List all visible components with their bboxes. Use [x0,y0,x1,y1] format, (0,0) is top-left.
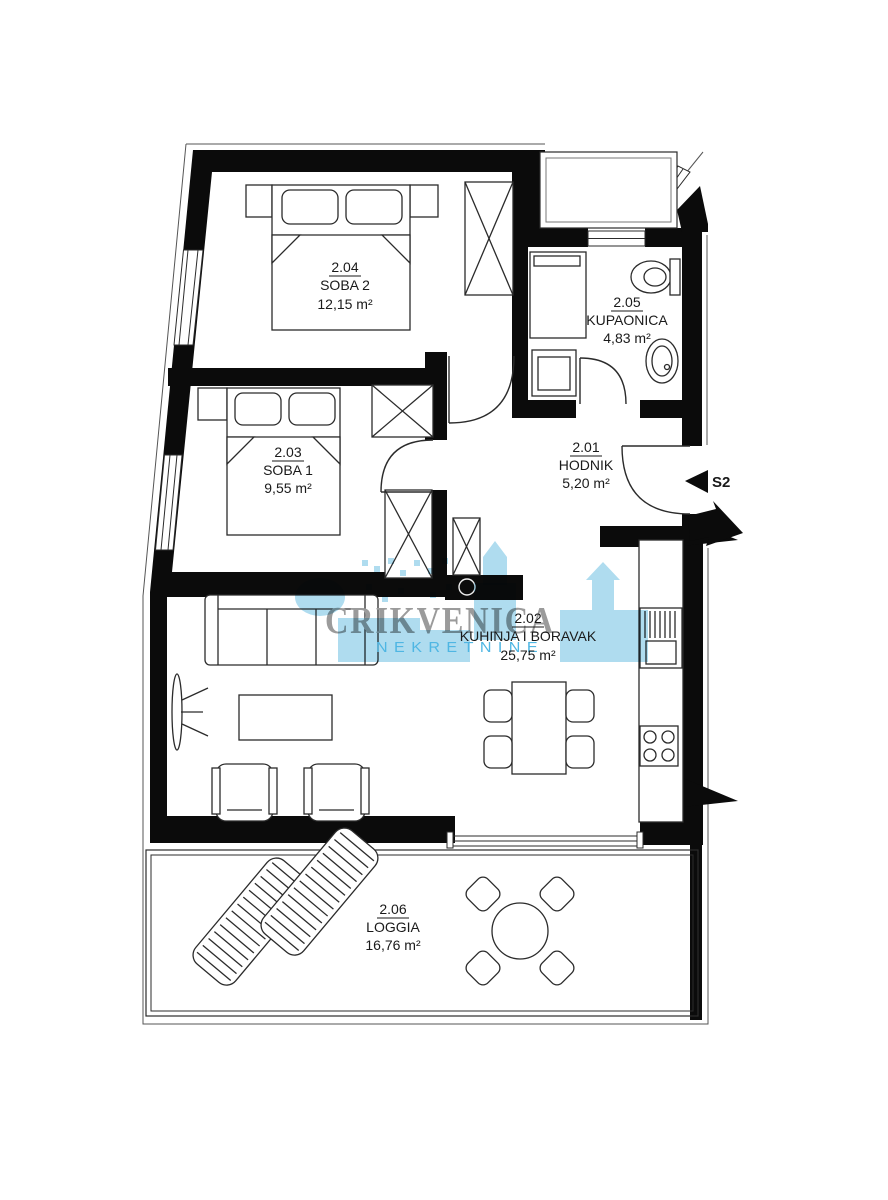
washing-machine [532,350,576,396]
floor-plan-page: CRIKVENICA NEKRETNINE 2.04 SOBA 2 12,15 … [0,0,888,1200]
cooktop [640,726,678,766]
wardrobe-soba2 [465,182,513,295]
wall-bedroom-divider [168,368,447,386]
wall-entry-above [682,418,702,446]
wardrobe-soba1-top [372,385,433,437]
nightstand [198,388,227,420]
pillow [289,393,335,425]
room-name: SOBA 2 [320,277,370,293]
room-code: 2.02 [514,610,541,626]
chair [537,948,577,988]
pillow [282,190,338,224]
chair [484,690,512,722]
entry-recess [540,152,677,228]
wall-left [150,592,167,843]
wall-bath-top-right [645,228,682,247]
wall-bath-top-left [512,228,588,247]
wardrobe-soba1-bottom [385,490,432,578]
nightstand [410,185,438,217]
chair [463,948,503,988]
armchair [304,764,369,821]
sink [646,339,678,383]
wall-flag-bottom [683,778,738,807]
loggia-table-set [463,874,577,988]
chair [463,874,503,914]
room-area: 16,76 m² [365,937,421,953]
room-label-loggia: 2.06 LOGGIA 16,76 m² [365,901,421,953]
room-code: 2.01 [572,439,599,455]
pillow [346,190,402,224]
round-table [492,903,548,959]
room-code: 2.04 [331,259,358,275]
room-name: KUHINJA I BORAVAK [460,628,597,644]
room-area: 12,15 m² [317,296,373,312]
room-code: 2.03 [274,444,301,460]
door-bathroom [580,358,626,404]
wall-loggia-right [690,845,702,1020]
wall-topright-diagonal [677,186,708,232]
floor-plan: CRIKVENICA NEKRETNINE 2.04 SOBA 2 12,15 … [0,0,888,1200]
room-name: LOGGIA [366,919,420,935]
entry-marker: S2 [685,470,730,493]
room-area: 4,83 m² [603,330,651,346]
room-area: 9,55 m² [264,480,312,496]
shower [530,252,586,338]
room-name: KUPAONICA [586,312,668,328]
armchair [212,764,277,821]
door-entry [622,446,690,514]
room-label-hodnik: 2.01 HODNIK 5,20 m² [559,439,614,491]
room-code: 2.05 [613,294,640,310]
chair [484,736,512,768]
wall-top [193,150,537,172]
dining-set [484,682,594,774]
chair [566,690,594,722]
nightstand [246,185,272,217]
chair [566,736,594,768]
wall-bath-left [512,172,528,400]
room-area: 5,20 m² [562,475,610,491]
wall-bath-bottom-left [512,400,576,418]
coffee-table [239,695,332,740]
entry-marker-label: S2 [712,474,730,491]
wall-bath-bottom-right [640,400,682,418]
glass-doors-loggia [447,832,643,848]
wall-bottom-left [150,816,455,843]
entry-triangle-icon [685,470,708,493]
door-soba2 [449,356,514,423]
chair [537,874,577,914]
room-area: 25,75 m² [500,647,556,663]
kitchen-counter [639,540,683,822]
room-name: SOBA 1 [263,462,313,478]
room-name: HODNIK [559,457,614,473]
room-code: 2.06 [379,901,406,917]
tv [172,674,208,750]
room-label-kupaonica: 2.05 KUPAONICA 4,83 m² [586,294,668,346]
pillow [235,393,281,425]
dining-table [512,682,566,774]
toilet [631,259,680,295]
wall-bath-right [682,228,702,418]
door-soba1 [381,440,433,492]
